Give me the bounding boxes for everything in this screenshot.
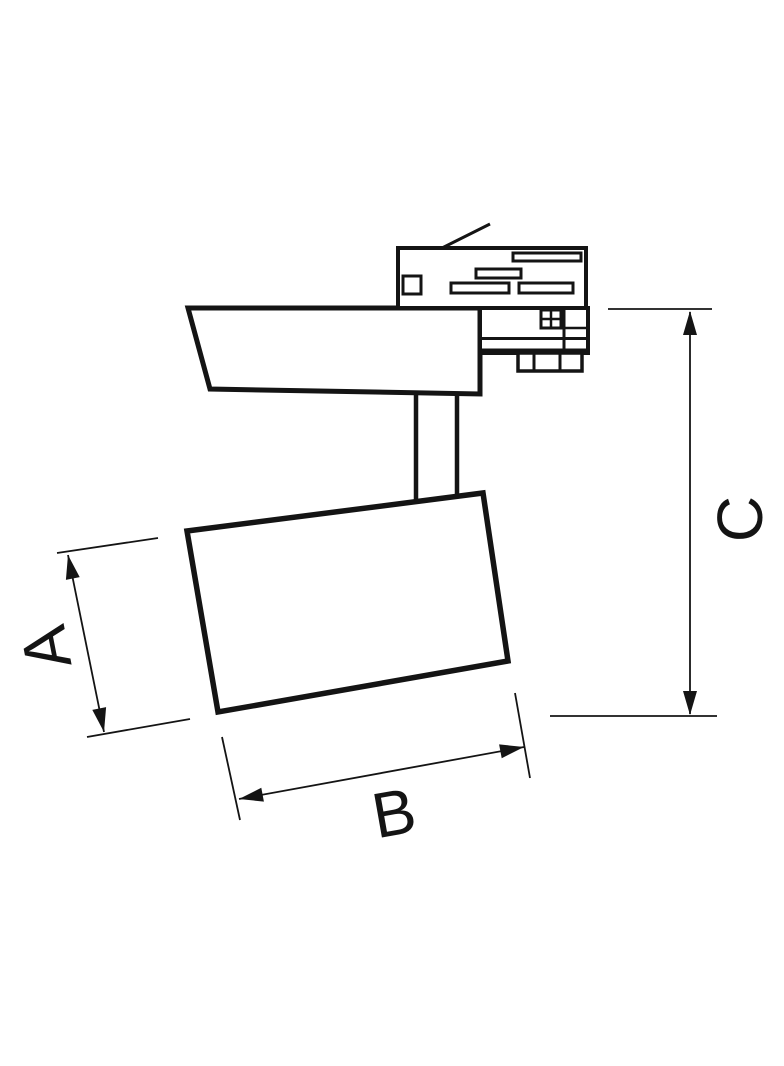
dimension-label-a: A xyxy=(7,620,86,676)
extension-line xyxy=(57,538,158,553)
mount-body xyxy=(480,308,588,353)
dimension-b: B xyxy=(222,693,530,852)
mounting-arm xyxy=(188,308,480,394)
arrowhead xyxy=(92,707,106,732)
adapter-slot-bottom-left xyxy=(451,283,509,293)
adapter-slot-top xyxy=(513,253,581,261)
dimension-a: A xyxy=(7,538,190,737)
adapter-window-square xyxy=(403,276,421,294)
stem xyxy=(416,392,457,505)
extension-line xyxy=(515,693,530,778)
dimension-label-c: C xyxy=(704,496,776,542)
dimension-c: C xyxy=(550,309,776,716)
luminaire-dimension-drawing: A B C xyxy=(0,0,784,1066)
dimension-label-b: B xyxy=(367,774,422,852)
arrowhead xyxy=(499,744,524,758)
arrowhead xyxy=(683,691,697,715)
mount-contact-tabs xyxy=(518,353,582,371)
track-mount xyxy=(478,308,588,371)
lamp-head xyxy=(187,493,508,712)
adapter-slot-middle xyxy=(476,269,521,278)
lamp-head-body xyxy=(187,493,508,712)
arrowhead xyxy=(239,788,264,802)
extension-line xyxy=(222,737,240,820)
track-adapter xyxy=(398,224,586,308)
drawing-canvas: A B C xyxy=(0,0,784,1066)
arm-body xyxy=(188,308,480,394)
adapter-slot-bottom-right xyxy=(519,283,573,293)
arrowhead xyxy=(683,311,697,335)
arrowhead xyxy=(66,555,80,580)
